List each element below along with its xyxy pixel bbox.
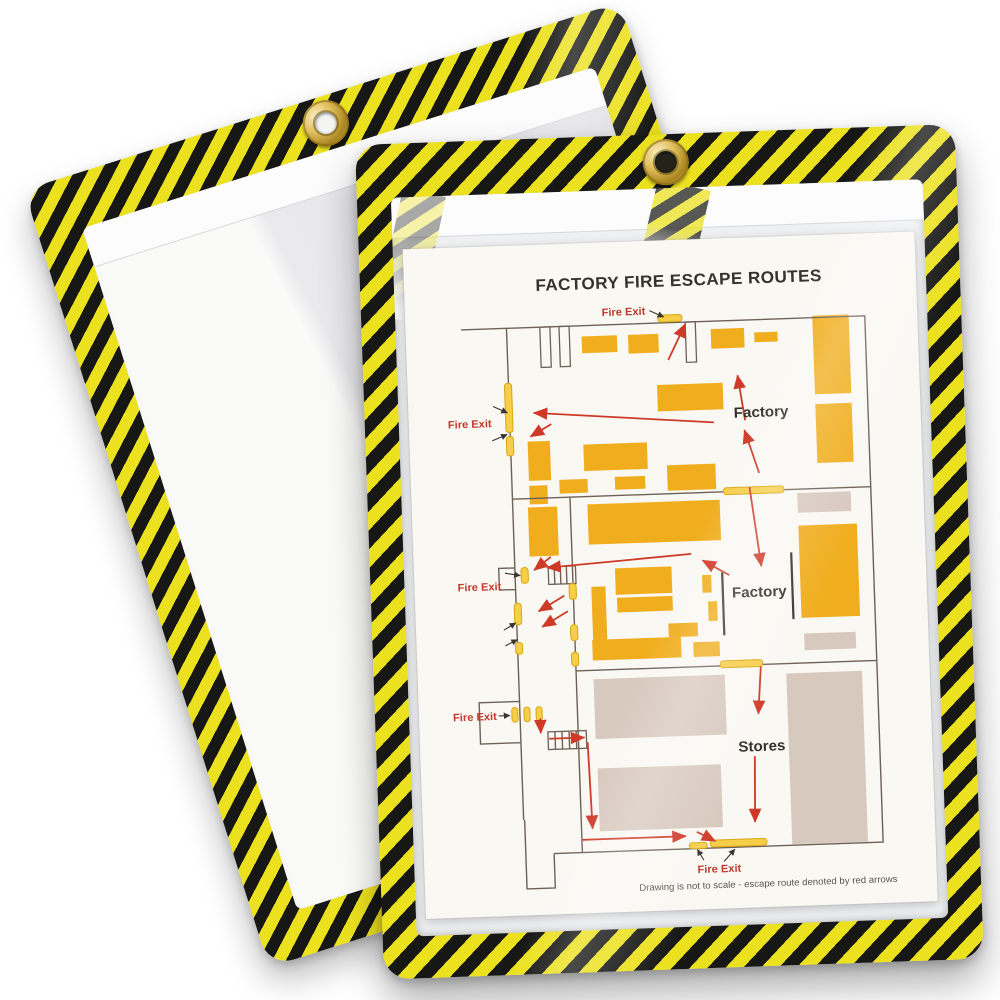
- fire-exit-label: Fire Exit: [457, 581, 501, 594]
- front-holder-grommet-icon: [642, 138, 690, 186]
- front-holder-striped-frame: FACTORY FIRE ESCAPE ROUTES Fire Exit Fir…: [355, 124, 984, 979]
- back-holder-grommet-icon: [297, 94, 355, 152]
- front-holder-pocket: FACTORY FIRE ESCAPE ROUTES Fire Exit Fir…: [391, 179, 948, 936]
- stairs-icon: [542, 566, 587, 750]
- area-label-factory-1: Factory: [733, 403, 789, 422]
- floor-plan-drawing: FACTORY FIRE ESCAPE ROUTES Fire Exit Fir…: [403, 232, 938, 919]
- area-label-factory-2: Factory: [732, 583, 788, 602]
- fire-exit-label: Fire Exit: [448, 418, 492, 431]
- grommet-hole: [312, 109, 340, 137]
- area-label-stores: Stores: [738, 737, 786, 755]
- fire-exit-label: Fire Exit: [697, 863, 741, 876]
- fire-exit-label: Fire Exit: [601, 306, 645, 319]
- fire-escape-plan-document: FACTORY FIRE ESCAPE ROUTES Fire Exit Fir…: [403, 232, 938, 919]
- front-holder-paper-edge: [391, 179, 924, 239]
- document-footnote: Drawing is not to scale - escape route d…: [639, 874, 898, 894]
- grommet-hole: [654, 151, 677, 174]
- document-title: FACTORY FIRE ESCAPE ROUTES: [535, 266, 822, 295]
- product-photo: m 080-9470: [0, 0, 1000, 1000]
- fire-exit-label: Fire Exit: [453, 711, 497, 724]
- front-ticket-holder: FACTORY FIRE ESCAPE ROUTES Fire Exit Fir…: [355, 124, 984, 979]
